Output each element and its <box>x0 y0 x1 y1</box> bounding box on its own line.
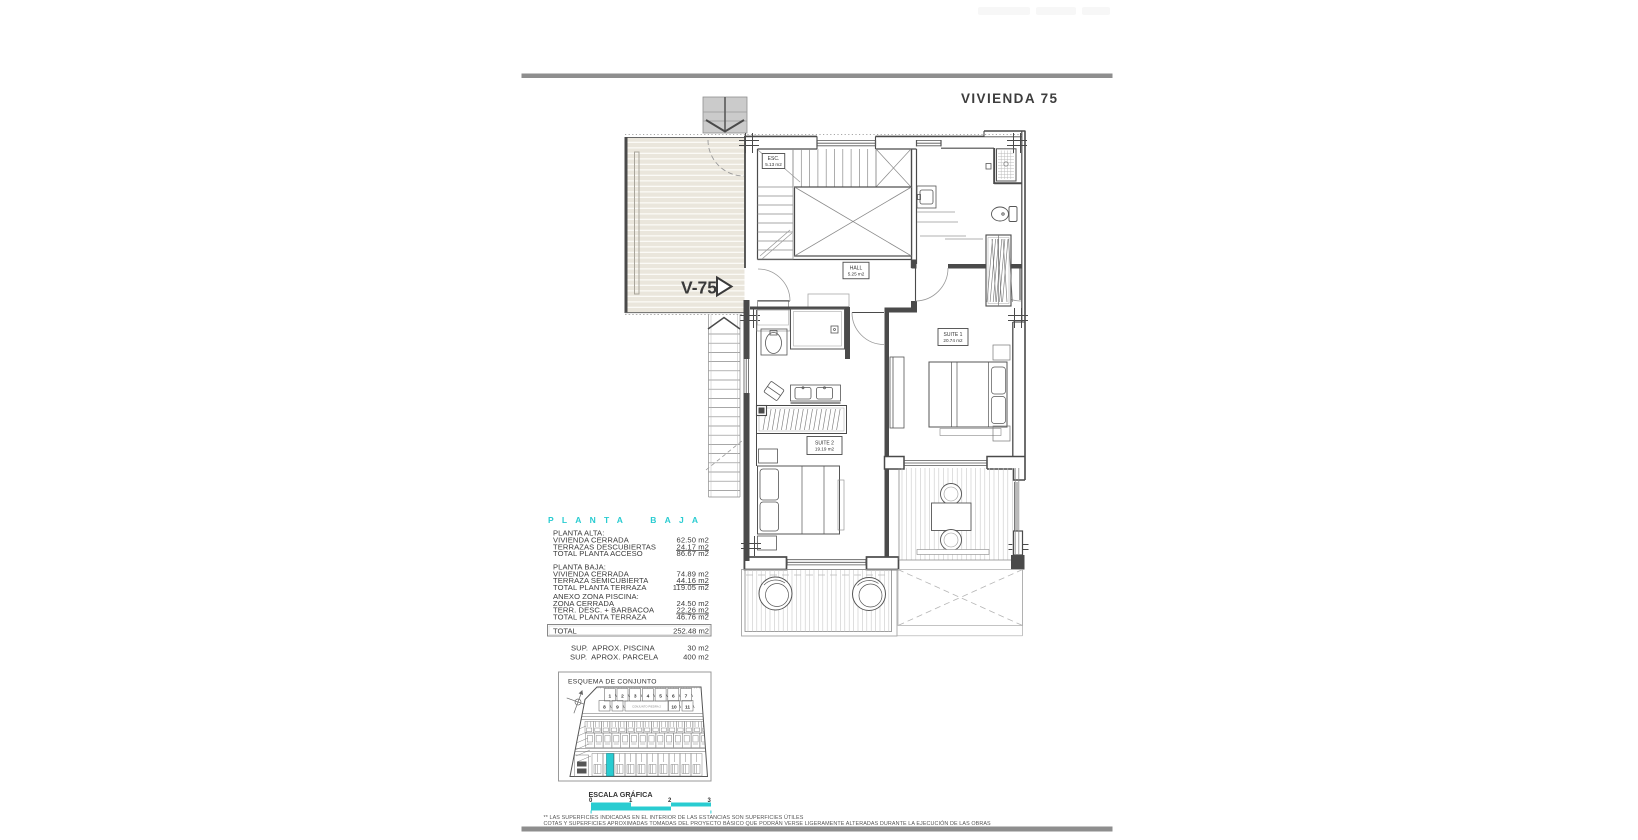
svg-text:TOTAL PLANTA ACCESO: TOTAL PLANTA ACCESO <box>553 549 643 558</box>
svg-text:1: 1 <box>608 694 611 700</box>
svg-text:ESCALA GRÁFICA: ESCALA GRÁFICA <box>589 790 653 799</box>
svg-text:20.74 m2: 20.74 m2 <box>943 338 963 343</box>
svg-text:19.19 m2: 19.19 m2 <box>815 447 835 452</box>
svg-text:SUP. APROX. PARCELA: SUP. APROX. PARCELA <box>570 653 659 662</box>
svg-text:** LAS SUPERFICIES INDICADAS E: ** LAS SUPERFICIES INDICADAS EN EL INTER… <box>544 814 804 821</box>
svg-text:46.76 m2: 46.76 m2 <box>677 612 709 621</box>
svg-text:HALL: HALL <box>850 265 863 271</box>
svg-text:252.48 m2: 252.48 m2 <box>673 627 709 636</box>
svg-text:86.67 m2: 86.67 m2 <box>677 549 709 558</box>
svg-text:7: 7 <box>685 694 688 700</box>
svg-text:ESC.: ESC. <box>768 156 780 162</box>
svg-text:ESQUEMA DE CONJUNTO: ESQUEMA DE CONJUNTO <box>568 679 657 686</box>
svg-text:5.25 m2: 5.25 m2 <box>848 272 865 277</box>
svg-text:11: 11 <box>685 705 690 711</box>
svg-text:PLANTA BAJA: PLANTA BAJA <box>548 515 706 525</box>
svg-text:400 m2: 400 m2 <box>683 653 709 662</box>
svg-text:5: 5 <box>659 694 662 700</box>
svg-text:2: 2 <box>621 694 624 700</box>
svg-text:5.13 m2: 5.13 m2 <box>765 162 782 167</box>
svg-text:V-75: V-75 <box>681 278 717 298</box>
svg-text:VIVIENDA 75: VIVIENDA 75 <box>961 91 1058 106</box>
svg-text:10: 10 <box>671 705 677 711</box>
svg-text:3: 3 <box>634 694 637 700</box>
svg-text:6: 6 <box>672 694 675 700</box>
svg-text:4: 4 <box>647 694 650 700</box>
svg-text:SUP. APROX. PISCINA: SUP. APROX. PISCINA <box>571 644 656 653</box>
svg-text:119.05 m2: 119.05 m2 <box>673 583 709 592</box>
svg-text:SUITE 2: SUITE 2 <box>815 440 834 446</box>
svg-text:30 m2: 30 m2 <box>687 644 709 653</box>
svg-text:8: 8 <box>603 705 606 711</box>
svg-text:TOTAL: TOTAL <box>553 627 577 636</box>
svg-text:9: 9 <box>616 705 619 711</box>
svg-text:SUITE 1: SUITE 1 <box>944 332 963 338</box>
svg-text:COTAS Y SUPERFICIES APROXIMADA: COTAS Y SUPERFICIES APROXIMADAS TOMADAS … <box>544 820 992 827</box>
svg-text:TOTAL PLANTA TERRAZA: TOTAL PLANTA TERRAZA <box>553 612 647 621</box>
svg-text:TOTAL PLANTA TERRAZA: TOTAL PLANTA TERRAZA <box>553 583 647 592</box>
svg-text:CONJUNTO PIEDRA 2: CONJUNTO PIEDRA 2 <box>632 705 661 709</box>
